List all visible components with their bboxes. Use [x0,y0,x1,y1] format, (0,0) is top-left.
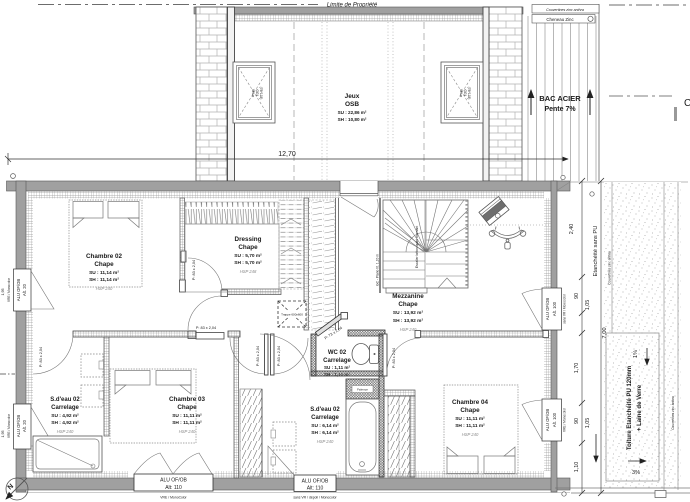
svg-text:P: 83 x 2,04: P: 83 x 2,04 [39,347,43,367]
svg-text:VRE / MonoColor: VRE / MonoColor [160,496,187,500]
svg-text:HSP 240: HSP 240 [400,327,417,332]
svg-text:1,05: 1,05 [585,418,591,429]
svg-text:Chape: Chape [238,244,258,251]
svg-text:Etanchéité sans PU: Etanchéité sans PU [593,226,599,277]
svg-text:SU : 11,11 m²: SU : 11,11 m² [455,416,485,422]
svg-text:GGL: GGL [255,89,259,96]
svg-text:SU : 6,14 m²: SU : 6,14 m² [311,423,339,429]
svg-text:C: C [684,98,690,109]
svg-text:Couvertines zinc anthra: Couvertines zinc anthra [671,396,675,430]
svg-text:SH : 6,14 m²: SH : 6,14 m² [311,430,339,436]
svg-text:SU : 1,11 m²: SU : 1,11 m² [324,365,351,370]
svg-text:GC - Plano ht. 1,10 m: GC - Plano ht. 1,10 m [376,254,380,286]
svg-text:12,70: 12,70 [278,151,296,158]
svg-text:(78*118): (78*118) [259,87,263,100]
svg-text:Carrelage: Carrelage [51,405,79,411]
svg-text:Chambre 03: Chambre 03 [169,396,206,403]
svg-text:HSP 240: HSP 240 [57,429,74,434]
svg-text:Chambre 02: Chambre 02 [86,253,123,260]
svg-text:VRE / Monocolor: VRE / Monocolor [7,413,11,438]
svg-text:Chambre 04: Chambre 04 [452,399,489,406]
svg-text:SH : 11,11 m²: SH : 11,11 m² [172,420,202,426]
svg-text:Alt. 100: Alt. 100 [552,412,557,427]
svg-text:Carrelage: Carrelage [311,415,339,421]
svg-text:Cheneau Zinc: Cheneau Zinc [546,17,574,22]
svg-text:Velux: Velux [251,89,255,98]
svg-text:sans VR / Monocolor: sans VR / Monocolor [563,293,567,324]
svg-text:1,95: 1,95 [1,431,5,438]
svg-text:HSP 240: HSP 240 [317,439,334,444]
svg-text:Chape: Chape [460,407,480,414]
svg-text:SH : 13,92 m²: SH : 13,92 m² [393,318,424,324]
svg-text:(78*118): (78*118) [467,87,471,100]
svg-text:SU : 4,92 m²: SU : 4,92 m² [51,413,79,419]
svg-text:SH : 11,11 m²: SH : 11,11 m² [455,423,485,429]
svg-text:1,05: 1,05 [585,300,591,311]
svg-text:HSP 240: HSP 240 [462,432,479,437]
svg-text:Pente 7%: Pente 7% [544,106,576,113]
svg-text:Couvertines zinc anthra: Couvertines zinc anthra [546,8,584,12]
svg-text:Couvertines zinc anthra: Couvertines zinc anthra [608,251,612,285]
svg-text:ALU OF/OB: ALU OF/OB [302,479,329,485]
svg-text:ALU OF/OB: ALU OF/OB [545,298,550,321]
svg-text:7,00: 7,00 [602,327,608,338]
svg-text:1,70: 1,70 [574,363,580,374]
svg-text:SU : 13,92 m²: SU : 13,92 m² [393,310,424,316]
svg-text:3%: 3% [632,470,640,476]
svg-text:Velux: Velux [459,89,463,98]
svg-text:SU : 5,70 m²: SU : 5,70 m² [234,253,262,259]
svg-text:SU : 11,11 m²: SU : 11,11 m² [172,413,202,419]
svg-text:Alt. 100: Alt. 100 [552,301,557,316]
svg-text:SH : 11,14 m²: SH : 11,14 m² [89,277,119,283]
svg-text:Alt. 20: Alt. 20 [22,283,27,296]
svg-text:BAC ACIER: BAC ACIER [539,94,581,103]
svg-text:Chape: Chape [177,404,197,411]
svg-text:VRE / Monocolor: VRE / Monocolor [563,407,567,432]
svg-text:ALU OF/OB: ALU OF/OB [160,478,187,484]
svg-text:HSP 248: HSP 248 [240,269,257,274]
svg-text:P: 83 x 2,04: P: 83 x 2,04 [392,348,396,368]
svg-text:Chape: Chape [94,261,114,268]
svg-text:S.d'eau 02: S.d'eau 02 [310,407,340,413]
svg-text:P: 83 x 2,04: P: 83 x 2,04 [196,326,216,330]
svg-text:90: 90 [574,293,580,299]
svg-text:Jeux: Jeux [345,93,360,100]
svg-text:SH : 4,92 m²: SH : 4,92 m² [51,420,79,426]
svg-text:Trappe 600x600: Trappe 600x600 [281,313,303,317]
svg-text:90: 90 [574,418,580,424]
svg-text:OSB: OSB [345,101,359,108]
svg-text:ALU OF/OB: ALU OF/OB [545,409,550,432]
svg-text:WC 02: WC 02 [328,350,347,356]
svg-text:P: 83 x 2,04: P: 83 x 2,04 [277,346,281,366]
svg-text:SU : 22,86 m²: SU : 22,86 m² [338,110,367,115]
svg-text:P: 83 x 2,04: P: 83 x 2,04 [192,260,196,280]
svg-text:GGL: GGL [463,89,467,96]
svg-text:VRE / Monocolor: VRE / Monocolor [7,277,11,302]
svg-text:sans VR / dépoli / Monocolor: sans VR / dépoli / Monocolor [293,496,337,500]
svg-text:ALU OF/OB: ALU OF/OB [16,279,21,302]
svg-text:SU : 11,14 m²: SU : 11,14 m² [89,270,119,276]
svg-text:Toiture Etanchéité PU 120mm: Toiture Etanchéité PU 120mm [627,366,633,450]
svg-text:SH : 10,80 m²: SH : 10,80 m² [338,117,367,122]
svg-text:2,40: 2,40 [569,224,575,235]
svg-text:S.d'eau 02: S.d'eau 02 [50,397,80,403]
svg-text:Mezzanine: Mezzanine [392,293,424,300]
svg-text:1%: 1% [633,350,639,358]
svg-text:Faïence: Faïence [357,388,368,392]
svg-text:Dressing: Dressing [235,236,262,243]
svg-text:P: 83 x 2,04: P: 83 x 2,04 [256,346,260,366]
svg-text:+ Laine de Verre: + Laine de Verre [637,384,643,431]
svg-text:Alt: 110: Alt: 110 [165,485,182,491]
svg-text:Chape: Chape [398,301,418,308]
svg-text:Alt: 110: Alt: 110 [307,486,324,492]
svg-text:Alt. 20: Alt. 20 [22,419,27,432]
svg-text:1,10: 1,10 [574,462,580,473]
svg-text:Carrelage: Carrelage [323,358,351,364]
svg-text:ALU OF/OB: ALU OF/OB [16,415,21,438]
svg-text:1,95: 1,95 [1,289,5,296]
svg-text:Escalier béton quart tournant: Escalier béton quart tournant [415,226,419,268]
svg-text:HSP 240: HSP 240 [96,286,113,291]
svg-text:SH : 5,70 m²: SH : 5,70 m² [234,260,262,266]
svg-text:HSP 240: HSP 240 [179,429,196,434]
